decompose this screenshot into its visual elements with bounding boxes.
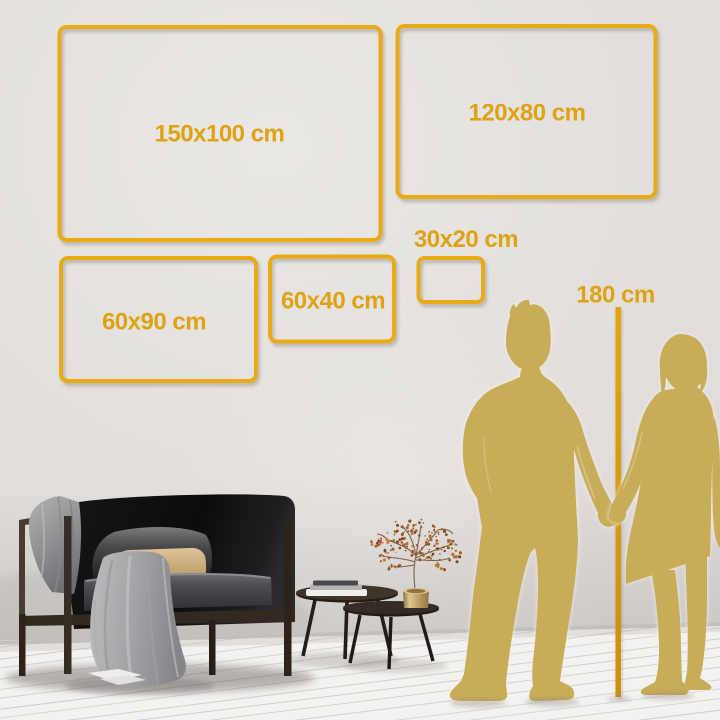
svg-text:30x20 cm: 30x20 cm [414, 226, 518, 253]
svg-text:60x40 cm: 60x40 cm [281, 288, 385, 315]
svg-text:180 cm: 180 cm [576, 282, 654, 309]
svg-text:60x90 cm: 60x90 cm [102, 309, 206, 336]
svg-text:150x100 cm: 150x100 cm [155, 121, 285, 148]
svg-text:120x80 cm: 120x80 cm [469, 100, 586, 127]
